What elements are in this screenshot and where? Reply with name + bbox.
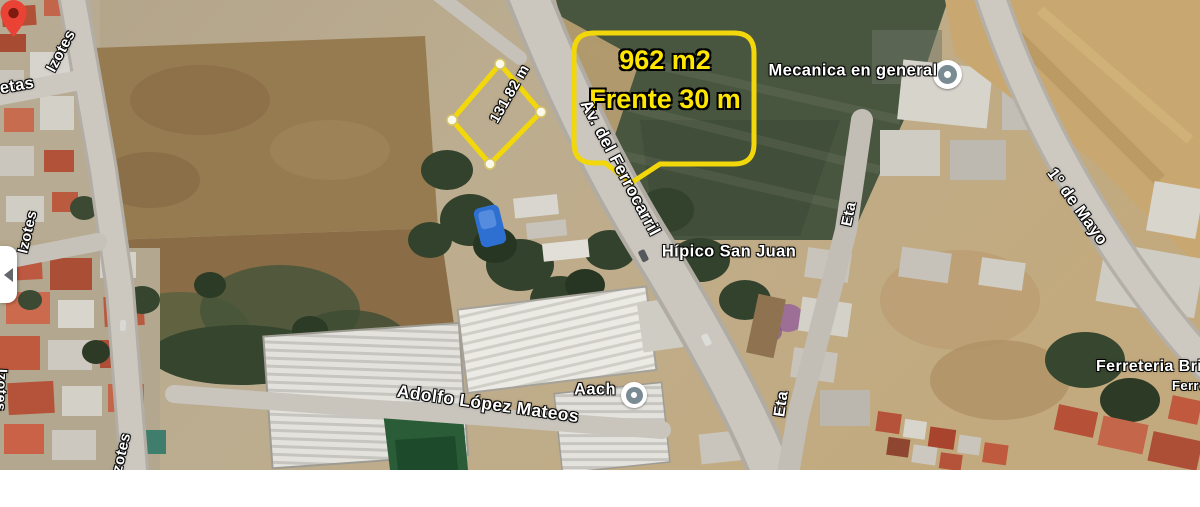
poi-circle-icon-aach[interactable] [621, 382, 647, 408]
plot-annotation-overlay [0, 0, 1200, 470]
poi-label-hipico-san-juan[interactable]: Hípico San Juan [662, 243, 796, 262]
poi-icon-inner [938, 65, 957, 84]
map-canvas[interactable]: 962 m2 Frente 30 m 131.82 m Av. del Ferr… [0, 0, 1200, 470]
bottom-white-margin [0, 470, 1200, 507]
poi-icon-inner [626, 387, 643, 404]
chevron-left-icon [4, 268, 13, 282]
screenshot-stage: 962 m2 Frente 30 m 131.82 m Av. del Ferr… [0, 0, 1200, 507]
panel-collapse-button[interactable] [0, 246, 17, 303]
poi-icon-dot [631, 392, 637, 398]
callout-frontage-text: Frente 30 m [589, 84, 741, 115]
street-label-izotes-left-edge: Izotes [0, 369, 11, 412]
poi-label-mecanica[interactable]: Mecanica en general [768, 62, 937, 81]
poi-label-aach[interactable]: Aach [574, 381, 616, 400]
street-label-eta-south: Eta [771, 390, 792, 418]
map-pin-icon[interactable] [0, 0, 27, 37]
poi-label-ferreteria[interactable]: Ferreteria Bris [1096, 358, 1200, 376]
poi-label-ferreteria-sub[interactable]: Ferre [1172, 378, 1200, 393]
poi-icon-dot [944, 71, 951, 78]
callout-area-text: 962 m2 [619, 45, 711, 76]
